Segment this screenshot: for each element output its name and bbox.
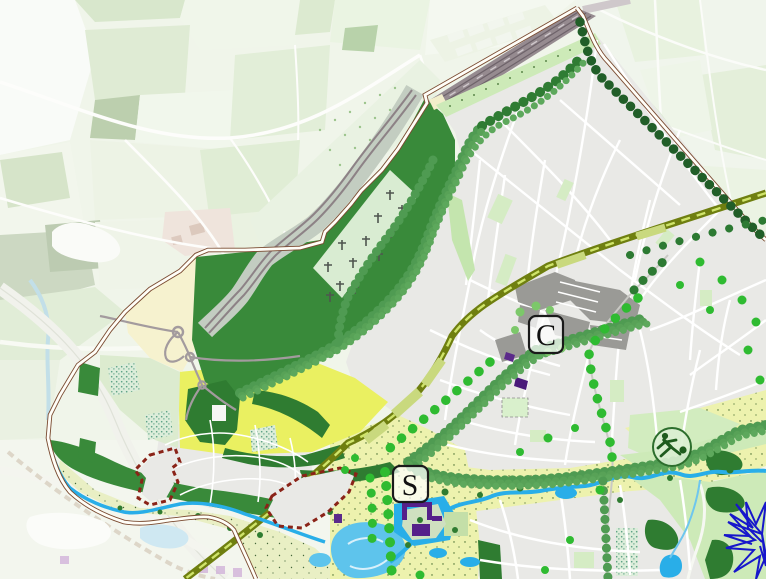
svg-text:S: S [402,469,419,502]
svg-text:C: C [536,319,556,352]
